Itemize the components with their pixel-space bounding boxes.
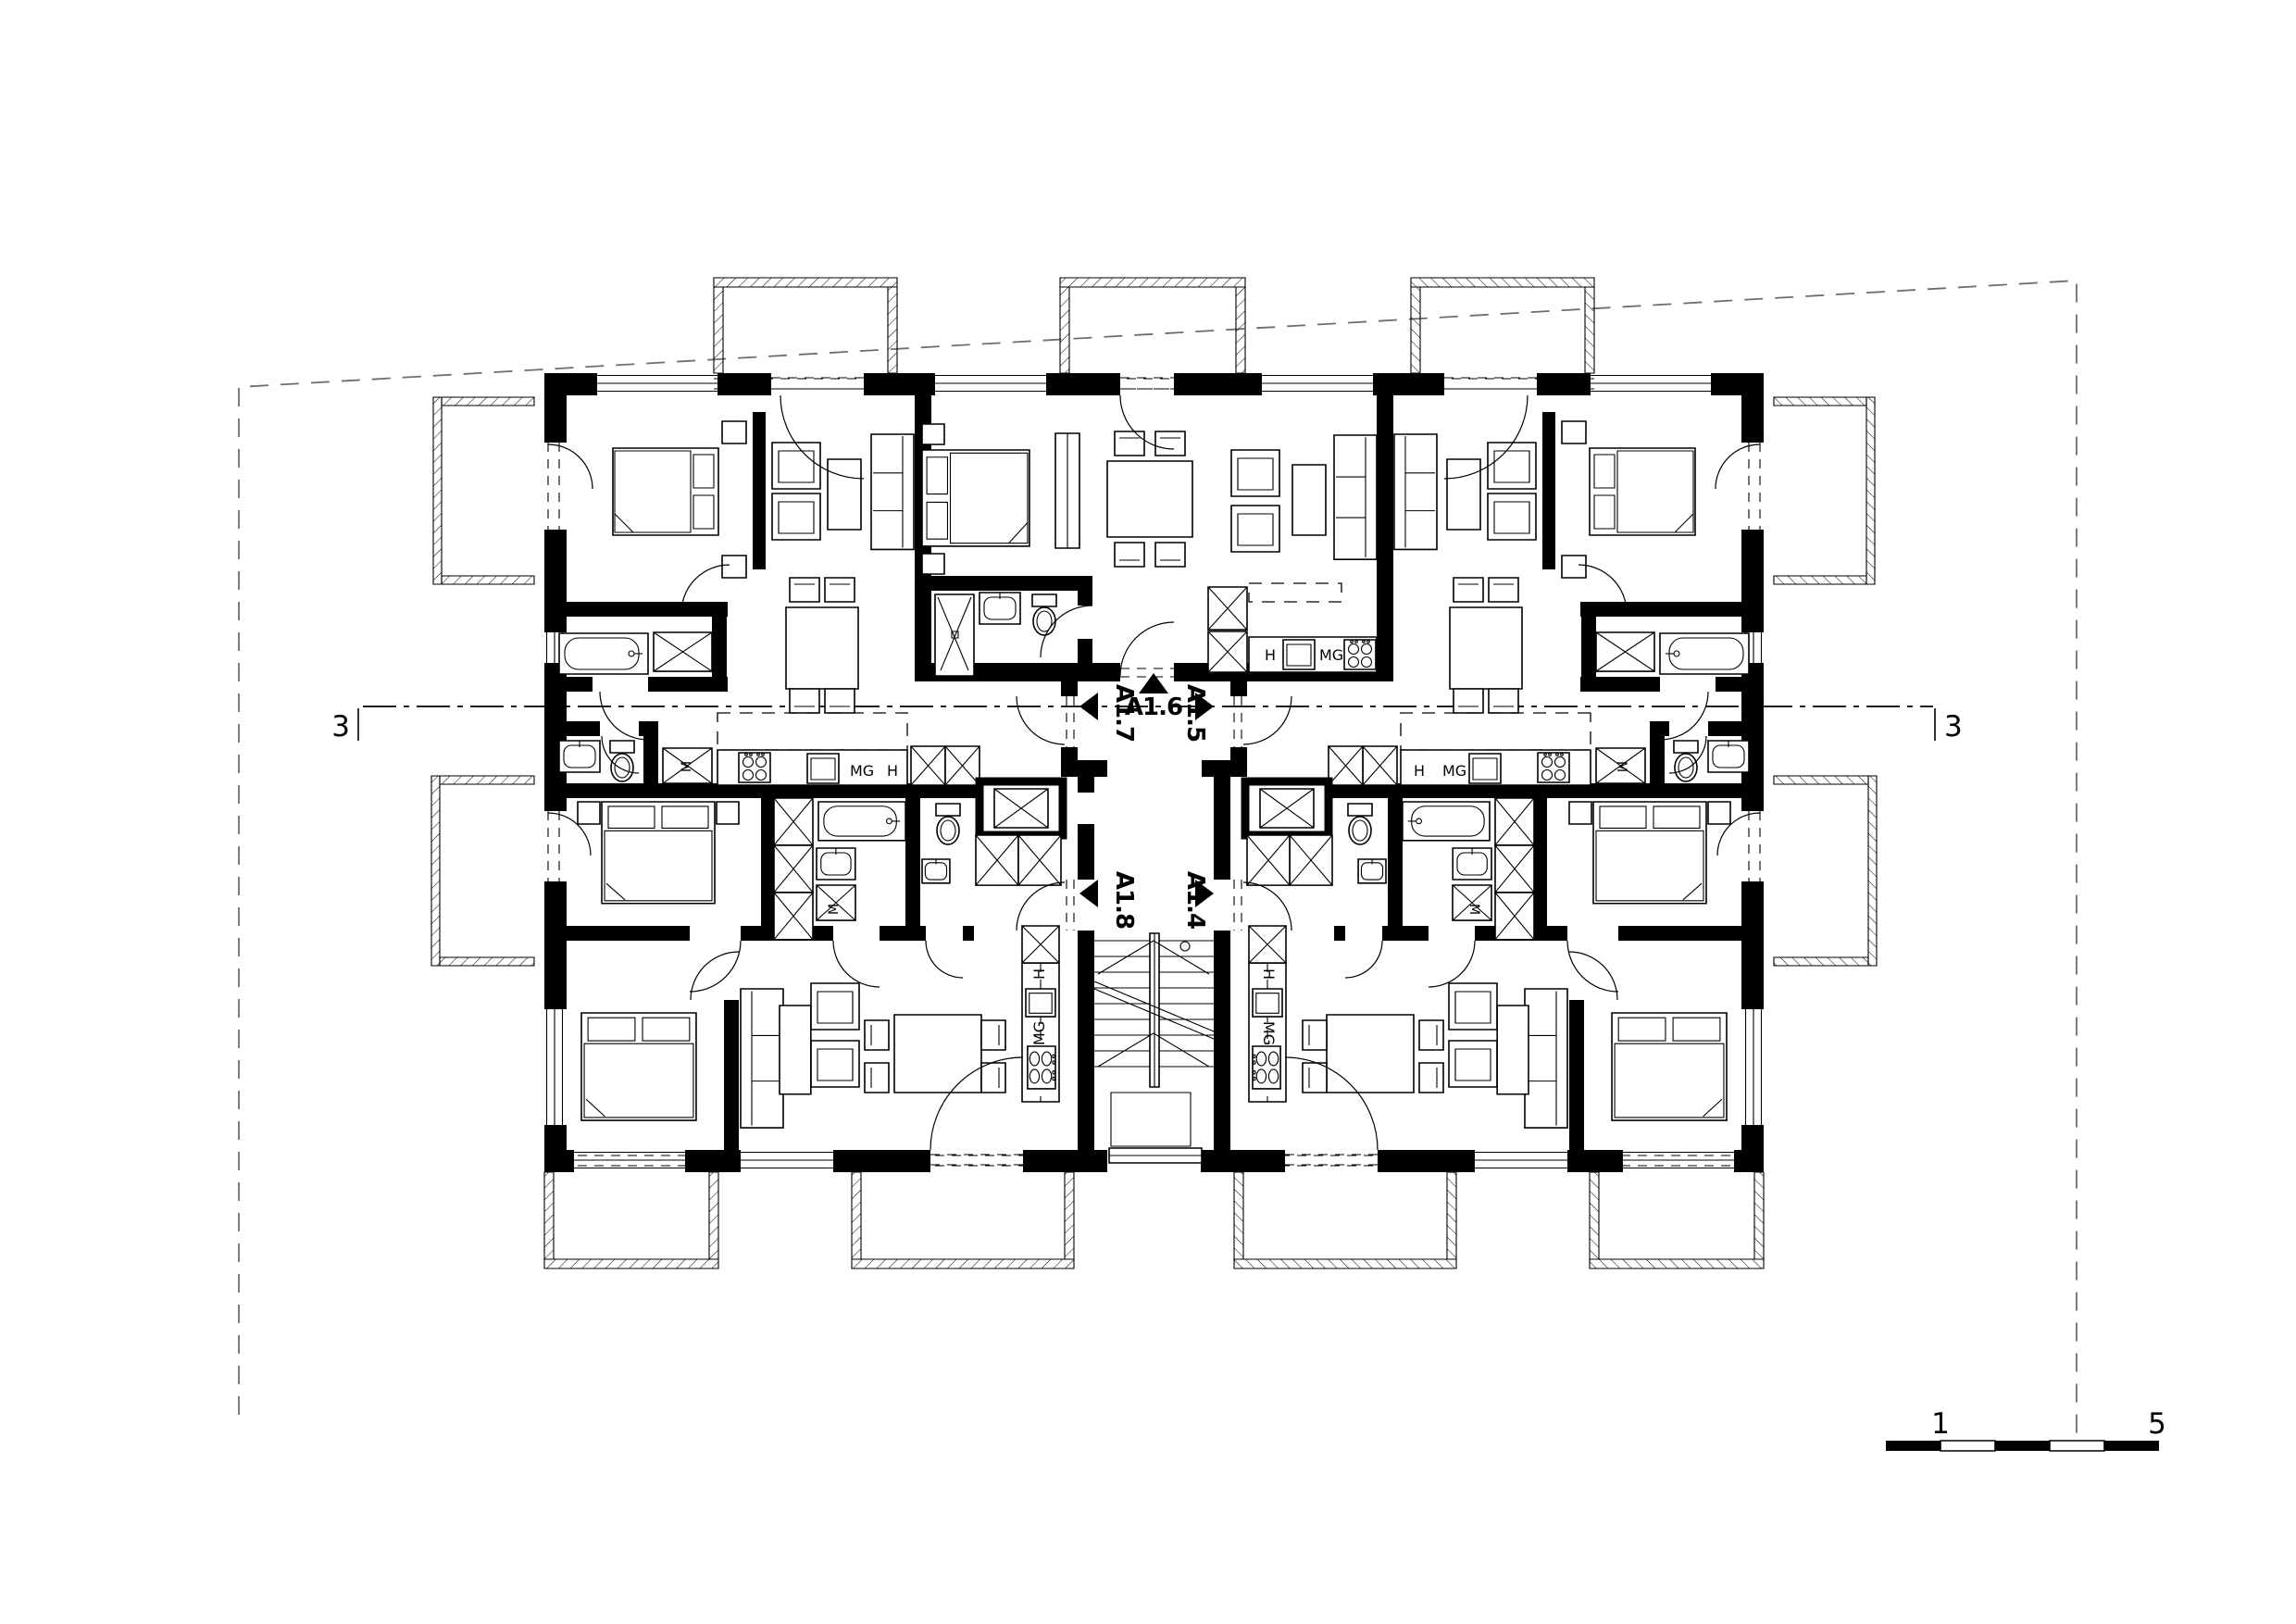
section-mark-right: 3 [1944, 710, 1963, 743]
armchair [1231, 450, 1279, 496]
chair [1115, 543, 1144, 567]
label-washing-machine: M [1614, 761, 1628, 772]
label-hob: H [1265, 646, 1276, 664]
label-hob: H [1260, 968, 1278, 980]
wardrobe [1208, 631, 1247, 672]
chair [1155, 431, 1185, 456]
stair-core [1061, 668, 1247, 1163]
floor-plan: 3 3 [0, 0, 2296, 1624]
entry-arrow-a1-7 [1079, 693, 1098, 720]
cooktop [1344, 640, 1376, 669]
label-apartment-a1-5: A1.5 [1181, 684, 1209, 742]
chair [1115, 431, 1144, 456]
entry-arrow-a1-8 [1079, 880, 1098, 907]
oven [1283, 640, 1315, 669]
armchair [1231, 506, 1279, 552]
label-microwave: MG [1030, 1021, 1048, 1045]
wardrobe [1208, 587, 1247, 630]
label-apartment-a1-8: A1.8 [1110, 871, 1138, 929]
label-washing-machine: M [1466, 904, 1481, 915]
label-apartment-a1-4: A1.4 [1181, 871, 1209, 929]
label-microwave: MG [1319, 646, 1343, 664]
sofa [1334, 435, 1377, 559]
apartment-a1-8 [548, 781, 1065, 1150]
chair [1155, 543, 1185, 567]
label-washing-machine: M [680, 761, 694, 772]
shower [935, 594, 974, 676]
label-hob: H [1414, 762, 1425, 780]
label-apartment-a1-6: A1.6 [1125, 693, 1182, 721]
label-microwave: MG [1260, 1021, 1278, 1045]
toilet [1032, 594, 1056, 635]
sink [980, 593, 1020, 624]
dining-table [1107, 461, 1192, 537]
scale-bar: 1 5 [1886, 1407, 2166, 1451]
coffee-table [1292, 465, 1326, 535]
label-hob: H [1030, 968, 1048, 980]
entry-labels: A1.7 A1.6 A1.5 A1.8 A1.4 [1079, 673, 1214, 929]
label-washing-machine: M [827, 904, 842, 915]
entry-arrow-a1-6 [1139, 673, 1168, 693]
label-microwave: MG [850, 762, 874, 780]
double-bed [922, 450, 1029, 546]
apartment-a1-6 [915, 395, 1393, 681]
scale-label-5: 5 [2148, 1407, 2166, 1441]
label-microwave: MG [1442, 762, 1466, 780]
apartment-a1-5 [1243, 395, 1764, 798]
apartment-a1-4 [1243, 781, 1760, 1150]
staircase [1094, 933, 1214, 1146]
label-hob: H [887, 762, 898, 780]
scale-label-1: 1 [1931, 1407, 1950, 1441]
section-mark-left: 3 [331, 710, 350, 743]
